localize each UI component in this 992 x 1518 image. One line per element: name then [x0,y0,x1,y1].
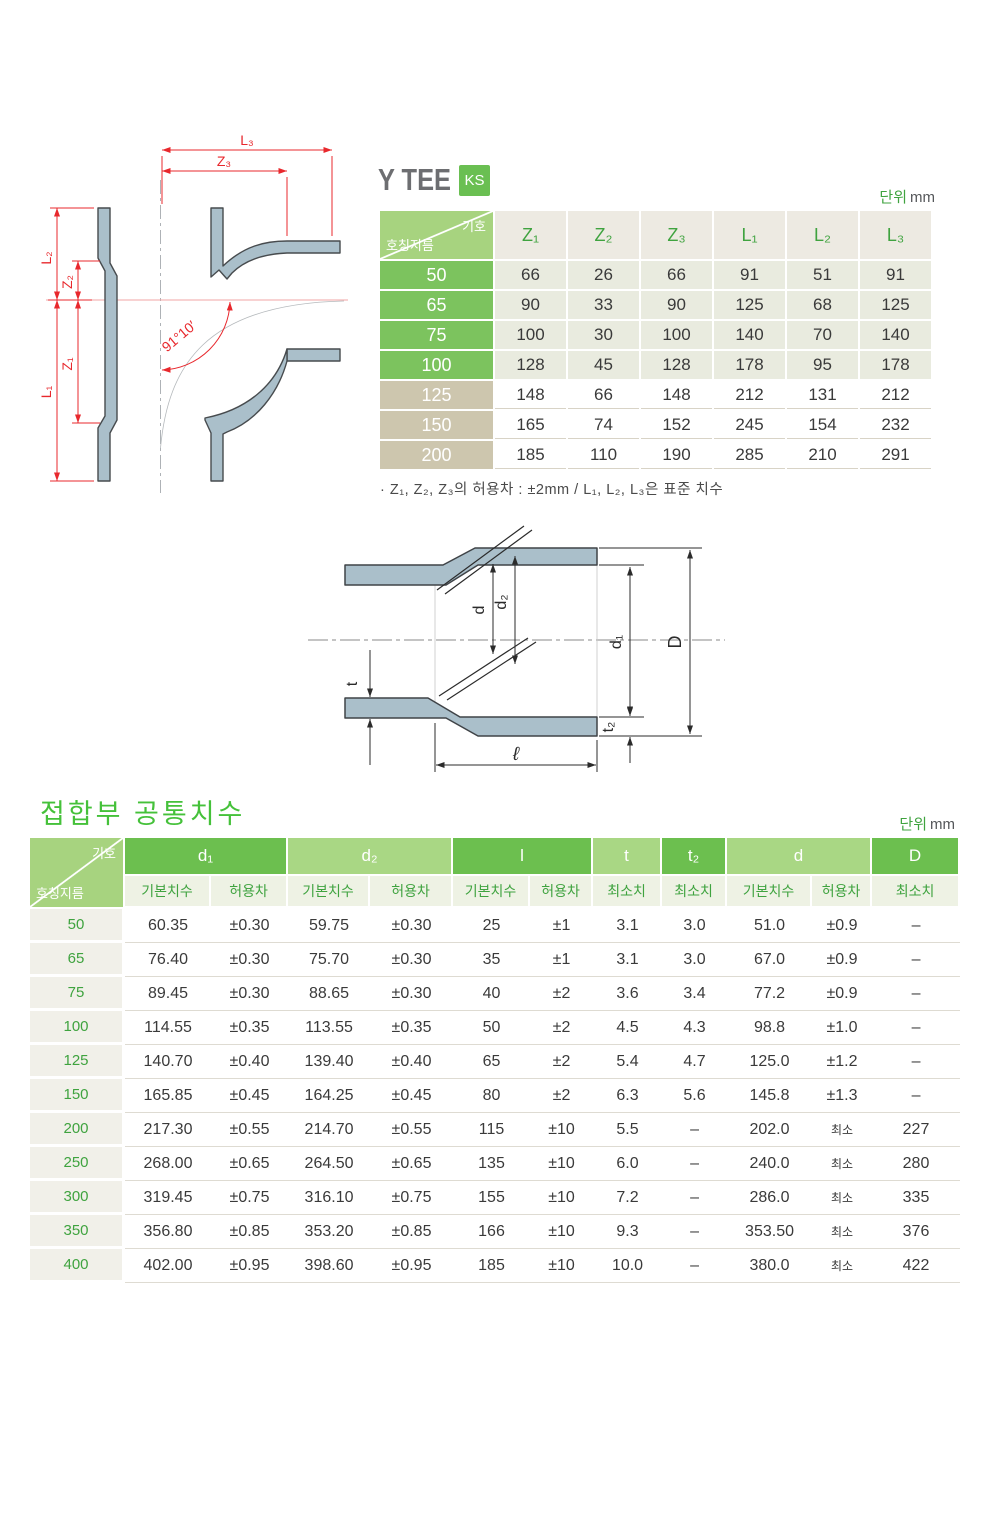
dim-label-l: ℓ [512,744,520,765]
table-cell: – [662,1215,727,1249]
table-cell: ±10 [530,1215,593,1249]
table-cell: 402.00 [125,1249,211,1283]
table-cell: ±0.65 [211,1147,288,1181]
table-cell: 50 [453,1011,530,1045]
row-label: 150 [380,411,493,439]
table-cell: 140 [860,321,931,349]
dim-label-L1: L₁ [38,385,54,398]
table-cell: 100 [495,321,566,349]
table-cell: 5.5 [593,1113,662,1147]
table-cell: 67.0 [727,943,812,977]
table-cell: – [662,1181,727,1215]
table-cell: ±2 [530,1011,593,1045]
table-cell: 264.50 [288,1147,370,1181]
table-cell: ±1.2 [812,1045,872,1079]
joint-group-header: d₂ [288,838,453,876]
table-cell: ±0.40 [211,1045,288,1079]
table-cell: ±2 [530,977,593,1011]
table-cell: 91 [860,261,931,289]
table-cell: 68 [787,291,858,319]
corner-symbol-label: 기호 [462,216,486,235]
joint-centerline [308,565,725,718]
joint-group-header: l [453,838,593,876]
table-cell: 131 [787,381,858,409]
row-label: 100 [30,1011,125,1045]
table-cell: – [662,1147,727,1181]
table-cell: ±0.30 [211,909,288,943]
table-cell: ±2 [530,1045,593,1079]
dim-label-Z2: Z₂ [59,275,75,289]
table-cell: ±0.30 [370,977,453,1011]
tee-table-row: 12514866148212131212 [380,381,931,409]
table-cell: 25 [453,909,530,943]
table-cell: 59.75 [288,909,370,943]
tee-table-row: 50662666915191 [380,261,931,289]
table-cell: 115 [453,1113,530,1147]
table-cell: 125 [860,291,931,319]
table-cell: 66 [641,261,712,289]
table-cell: 125.0 [727,1045,812,1079]
table-cell: 178 [860,351,931,379]
table-cell: 268.00 [125,1147,211,1181]
table-cell: 139.40 [288,1045,370,1079]
tee-centerlines [46,180,348,493]
table-cell: 51 [787,261,858,289]
table-cell: 165 [495,411,566,439]
joint-subheader: 허용차 [211,876,288,909]
table-cell: ±0.55 [211,1113,288,1147]
tee-column-header: Z₁ [495,211,566,259]
table-cell: 74 [568,411,639,439]
table-cell: 148 [641,381,712,409]
product-title-row: Y TEE KS [378,162,490,198]
tee-dimensions [48,150,332,481]
table-cell: 154 [787,411,858,439]
table-cell: ±0.95 [211,1249,288,1283]
tee-column-header: L₁ [714,211,785,259]
table-cell: 최소 [812,1147,872,1181]
table-cell: 210 [787,441,858,469]
table-cell: 291 [860,441,931,469]
joint-dimension-table: 기호 호칭지름 d₁d₂ltt₂dD 기본치수허용차기본치수허용차기본치수허용차… [30,838,960,1283]
table-cell: ±0.75 [211,1181,288,1215]
table-cell: 5.6 [662,1079,727,1113]
table-cell: 140.70 [125,1045,211,1079]
table-cell: 30 [568,321,639,349]
row-label: 350 [30,1215,125,1249]
tee-corner-header-cell: 기호 호칭지름 [380,211,493,259]
table-cell: 152 [641,411,712,439]
table-cell: 77.2 [727,977,812,1011]
table-cell: 최소 [812,1113,872,1147]
table-cell: 80 [453,1079,530,1113]
table-cell: 35 [453,943,530,977]
table-cell: – [662,1113,727,1147]
table-cell: 240.0 [727,1147,812,1181]
tee-table-body: 5066266691519165903390125681257510030100… [380,261,931,469]
joint-table-row: 125140.70±0.40139.40±0.4065±25.44.7125.0… [30,1045,960,1079]
tee-column-header: L₂ [787,211,858,259]
table-cell: 7.2 [593,1181,662,1215]
table-cell: ±0.45 [370,1079,453,1113]
row-label: 300 [30,1181,125,1215]
table-cell: 5.4 [593,1045,662,1079]
tee-table-row: 15016574152245154232 [380,411,931,439]
row-label: 200 [380,441,493,469]
dim-label-L2: L₂ [38,251,54,264]
table-cell: 51.0 [727,909,812,943]
row-label: 250 [30,1147,125,1181]
joint-subheader: 허용차 [812,876,872,909]
table-cell: 113.55 [288,1011,370,1045]
dim-label-d2: d₂ [493,594,510,609]
table-cell: 26 [568,261,639,289]
y-tee-section-diagram: L₃ Z₃ L₂ Z₂ Z₁ L₁ 91°10′ [30,118,370,496]
table-cell: 75.70 [288,943,370,977]
joint-subheader: 기본치수 [727,876,812,909]
table-cell: – [872,943,960,977]
table-cell: 3.4 [662,977,727,1011]
row-label: 50 [380,261,493,289]
table-cell: 212 [714,381,785,409]
table-cell: ±0.30 [370,943,453,977]
table-cell: 280 [872,1147,960,1181]
table-cell: ±0.9 [812,943,872,977]
table-cell: 227 [872,1113,960,1147]
joint-table-row: 250268.00±0.65264.50±0.65135±106.0–240.0… [30,1147,960,1181]
tee-dimension-table: 기호 호칭지름 Z₁Z₂Z₃L₁L₂L₃ 5066266691519165903… [378,209,933,471]
table-cell: ±0.35 [211,1011,288,1045]
table-cell: ±0.9 [812,909,872,943]
table-cell: 40 [453,977,530,1011]
table-cell: 422 [872,1249,960,1283]
tee-table-footnote: · Z₁, Z₂, Z₃의 허용차 : ±2mm / L₁, L₂, L₃은 표… [380,478,723,499]
tee-pipe-walls [98,208,340,481]
tee-table-row: 200185110190285210291 [380,441,931,469]
table-cell: 190 [641,441,712,469]
joint-pipe-walls [345,548,597,736]
joint-group-header: t [593,838,662,876]
row-label: 200 [30,1113,125,1147]
dim-label-angle: 91°10′ [159,317,200,355]
row-label: 150 [30,1079,125,1113]
table-cell: 최소 [812,1215,872,1249]
table-cell: 128 [495,351,566,379]
joint-table-row: 7589.45±0.3088.65±0.3040±23.63.477.2±0.9… [30,977,960,1011]
table-cell: 185 [495,441,566,469]
joint-subheader: 최소치 [662,876,727,909]
table-cell: – [872,977,960,1011]
table-cell: ±0.9 [812,977,872,1011]
joint-subheader: 기본치수 [125,876,211,909]
table-cell: 98.8 [727,1011,812,1045]
table-cell: ±0.55 [370,1113,453,1147]
joint-table-row: 5060.35±0.3059.75±0.3025±13.13.051.0±0.9… [30,909,960,943]
table-cell: ±1.3 [812,1079,872,1113]
table-cell: 335 [872,1181,960,1215]
table-cell: – [872,909,960,943]
table-cell: 185 [453,1249,530,1283]
tee-table-row: 6590339012568125 [380,291,931,319]
table-cell: – [872,1079,960,1113]
ks-badge: KS [459,165,490,196]
tee-table-row: 1001284512817895178 [380,351,931,379]
joint-corner-header-cell: 기호 호칭지름 [30,838,125,909]
table-cell: ±10 [530,1181,593,1215]
table-cell: 214.70 [288,1113,370,1147]
table-cell: – [872,1045,960,1079]
socket-joint-diagram: d d₂ d₁ D t t₂ ℓ [300,518,740,786]
table-cell: ±0.35 [370,1011,453,1045]
table-cell: 9.3 [593,1215,662,1249]
dim-label-d: d [471,606,488,615]
table-cell: ±0.30 [370,909,453,943]
table-cell: 114.55 [125,1011,211,1045]
table-cell: 286.0 [727,1181,812,1215]
corner-diameter-label: 호칭지름 [36,883,84,902]
table-cell: 245 [714,411,785,439]
joint-subheader: 기본치수 [453,876,530,909]
table-cell: ±0.40 [370,1045,453,1079]
table-cell: 110 [568,441,639,469]
table-cell: 70 [787,321,858,349]
table-cell: 212 [860,381,931,409]
table-cell: 398.60 [288,1249,370,1283]
table-cell: 33 [568,291,639,319]
table-cell: 202.0 [727,1113,812,1147]
joint-subheader-row: 기본치수허용차기본치수허용차기본치수허용차최소치최소치기본치수허용차최소치 [30,876,960,909]
joint-subheader: 허용차 [370,876,453,909]
table-cell: ±0.30 [211,943,288,977]
joint-section-heading: 접합부 공통치수 [40,792,245,831]
table-cell: 319.45 [125,1181,211,1215]
table-cell: 145.8 [727,1079,812,1113]
table-cell: 66 [495,261,566,289]
unit-label-top: 단위mm [785,186,935,207]
table-cell: 4.3 [662,1011,727,1045]
row-label: 75 [380,321,493,349]
dim-label-t2: t₂ [600,722,617,733]
table-cell: 4.5 [593,1011,662,1045]
table-cell: 125 [714,291,785,319]
table-cell: 45 [568,351,639,379]
table-cell: 353.20 [288,1215,370,1249]
joint-table-row: 400402.00±0.95398.60±0.95185±1010.0–380.… [30,1249,960,1283]
table-cell: 3.0 [662,909,727,943]
table-cell: 148 [495,381,566,409]
table-cell: 376 [872,1215,960,1249]
joint-group-header: d₁ [125,838,288,876]
table-cell: ±1 [530,909,593,943]
table-cell: 353.50 [727,1215,812,1249]
table-cell: 178 [714,351,785,379]
table-cell: 66 [568,381,639,409]
joint-table-body: 5060.35±0.3059.75±0.3025±13.13.051.0±0.9… [30,909,960,1283]
table-cell: ±10 [530,1113,593,1147]
table-cell: ±2 [530,1079,593,1113]
table-cell: – [662,1249,727,1283]
table-cell: 380.0 [727,1249,812,1283]
table-cell: 91 [714,261,785,289]
table-cell: 89.45 [125,977,211,1011]
joint-table-row: 150165.85±0.45164.25±0.4580±26.35.6145.8… [30,1079,960,1113]
table-cell: 128 [641,351,712,379]
table-cell: 100 [641,321,712,349]
table-cell: 6.3 [593,1079,662,1113]
joint-table-row: 200217.30±0.55214.70±0.55115±105.5–202.0… [30,1113,960,1147]
joint-subheader: 기본치수 [288,876,370,909]
dim-label-t: t [344,681,361,686]
row-label: 125 [380,381,493,409]
table-cell: 285 [714,441,785,469]
row-label: 100 [380,351,493,379]
table-cell: ±10 [530,1249,593,1283]
table-cell: – [872,1011,960,1045]
table-cell: 155 [453,1181,530,1215]
tee-header-row: 기호 호칭지름 Z₁Z₂Z₃L₁L₂L₃ [380,211,931,259]
table-cell: 3.1 [593,943,662,977]
table-cell: ±0.75 [370,1181,453,1215]
catalog-page: L₃ Z₃ L₂ Z₂ Z₁ L₁ 91°10′ Y TEE KS 단위mm 기… [0,0,992,1518]
table-cell: 140 [714,321,785,349]
table-cell: 90 [495,291,566,319]
joint-subheader: 최소치 [872,876,960,909]
table-cell: 60.35 [125,909,211,943]
table-cell: 135 [453,1147,530,1181]
row-label: 65 [380,291,493,319]
table-cell: 217.30 [125,1113,211,1147]
table-cell: 6.0 [593,1147,662,1181]
dim-label-D: D [665,636,685,649]
table-cell: 90 [641,291,712,319]
joint-table-row: 300319.45±0.75316.10±0.75155±107.2–286.0… [30,1181,960,1215]
row-label: 75 [30,977,125,1011]
table-cell: 10.0 [593,1249,662,1283]
table-cell: 164.25 [288,1079,370,1113]
table-cell: 3.0 [662,943,727,977]
tee-table-row: 751003010014070140 [380,321,931,349]
table-cell: ±0.85 [370,1215,453,1249]
joint-group-header: D [872,838,960,876]
table-cell: ±0.30 [211,977,288,1011]
joint-subheader: 최소치 [593,876,662,909]
joint-table-row: 100114.55±0.35113.55±0.3550±24.54.398.8±… [30,1011,960,1045]
table-cell: ±0.65 [370,1147,453,1181]
page-title: Y TEE [378,162,451,198]
table-cell: 4.7 [662,1045,727,1079]
row-label: 125 [30,1045,125,1079]
table-cell: 최소 [812,1249,872,1283]
table-cell: ±0.45 [211,1079,288,1113]
table-cell: ±0.85 [211,1215,288,1249]
dim-label-L3: L₃ [240,132,254,148]
corner-diameter-label: 호칭지름 [386,235,434,254]
table-cell: ±10 [530,1147,593,1181]
tee-column-header: L₃ [860,211,931,259]
unit-label-bottom: 단위mm [805,813,955,834]
table-cell: 3.6 [593,977,662,1011]
joint-group-header: d [727,838,872,876]
table-cell: 166 [453,1215,530,1249]
table-cell: ±1.0 [812,1011,872,1045]
dim-label-Z3: Z₃ [217,153,231,169]
table-cell: ±0.95 [370,1249,453,1283]
joint-group-header: t₂ [662,838,727,876]
table-cell: 232 [860,411,931,439]
table-cell: 316.10 [288,1181,370,1215]
table-cell: ±1 [530,943,593,977]
joint-subheader: 허용차 [530,876,593,909]
dim-label-Z1: Z₁ [59,357,75,371]
dim-label-d1: d₁ [608,635,625,649]
table-cell: 3.1 [593,909,662,943]
joint-table-row: 6576.40±0.3075.70±0.3035±13.13.067.0±0.9… [30,943,960,977]
table-cell: 최소 [812,1181,872,1215]
tee-column-header: Z₂ [568,211,639,259]
table-cell: 65 [453,1045,530,1079]
tee-column-header: Z₃ [641,211,712,259]
joint-table-row: 350356.80±0.85353.20±0.85166±109.3–353.5… [30,1215,960,1249]
row-label: 65 [30,943,125,977]
joint-group-header-row: 기호 호칭지름 d₁d₂ltt₂dD [30,838,960,876]
table-cell: 95 [787,351,858,379]
table-cell: 76.40 [125,943,211,977]
table-cell: 356.80 [125,1215,211,1249]
corner-symbol-label: 기호 [92,843,116,862]
table-cell: 88.65 [288,977,370,1011]
row-label: 50 [30,909,125,943]
table-cell: 165.85 [125,1079,211,1113]
row-label: 400 [30,1249,125,1283]
